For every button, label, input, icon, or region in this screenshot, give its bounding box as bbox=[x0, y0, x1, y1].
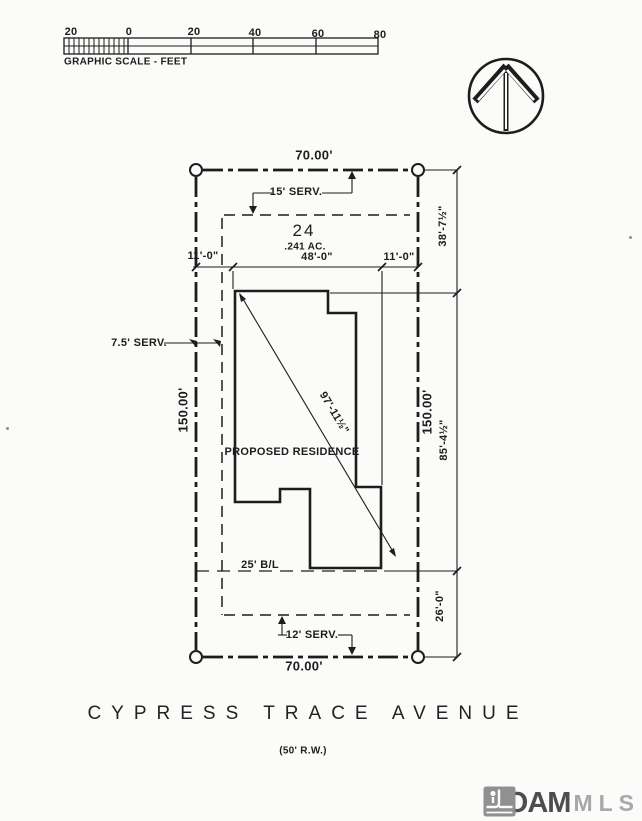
lot-acreage: .241 AC. bbox=[284, 242, 326, 253]
scale-caption: GRAPHIC SCALE - FEET bbox=[64, 57, 187, 68]
dim-front-center: 48'-0" bbox=[301, 251, 333, 263]
building-outline bbox=[235, 291, 381, 568]
site-plan-page: 20 0 20 40 60 80 GRAPHIC SCALE - FEET 70… bbox=[0, 0, 642, 821]
dim-top-width: 70.00' bbox=[295, 148, 332, 163]
scale-tick: 0 bbox=[126, 26, 132, 38]
servitude-bottom-label: 12' SERV. bbox=[286, 629, 338, 641]
roam-mls-logo: ROAM MLS bbox=[483, 786, 640, 820]
dim-right-upper: 38'-7½" bbox=[437, 205, 449, 246]
dim-front-right: 11'-0" bbox=[383, 251, 414, 263]
scale-tick: 40 bbox=[249, 27, 262, 39]
dim-bottom-width: 70.00' bbox=[285, 659, 322, 674]
roam-logo-icon bbox=[483, 786, 516, 817]
servitude-top-label: 15' SERV. bbox=[270, 186, 322, 198]
dim-right-middle: 85'-4½" bbox=[438, 419, 450, 460]
scale-tick: 20 bbox=[65, 26, 78, 38]
scale-tick: 20 bbox=[188, 26, 201, 38]
scan-speck bbox=[629, 236, 632, 239]
dim-left-depth: 150.00' bbox=[176, 388, 191, 433]
mls-logo-text: MLS bbox=[573, 790, 640, 817]
street-name: CYPRESS TRACE AVENUE bbox=[87, 703, 528, 725]
servitude-left-label: 7.5' SERV. bbox=[111, 337, 167, 349]
dim-right-lower: 26'-0" bbox=[434, 590, 446, 622]
scan-speck bbox=[6, 427, 9, 430]
lot-number: 24 bbox=[293, 221, 316, 241]
dim-front-left: 11'-0" bbox=[187, 250, 218, 262]
scale-bar bbox=[64, 38, 378, 54]
street-right-of-way: (50' R.W.) bbox=[279, 746, 327, 757]
north-arrow-icon bbox=[469, 59, 543, 133]
site-plan-linework bbox=[0, 0, 642, 821]
dim-right-depth: 150.00' bbox=[420, 390, 435, 435]
residence-label: PROPOSED RESIDENCE bbox=[225, 446, 360, 458]
scale-tick: 80 bbox=[374, 29, 387, 41]
building-line-label: 25' B/L bbox=[241, 559, 279, 571]
scale-tick: 60 bbox=[312, 28, 325, 40]
